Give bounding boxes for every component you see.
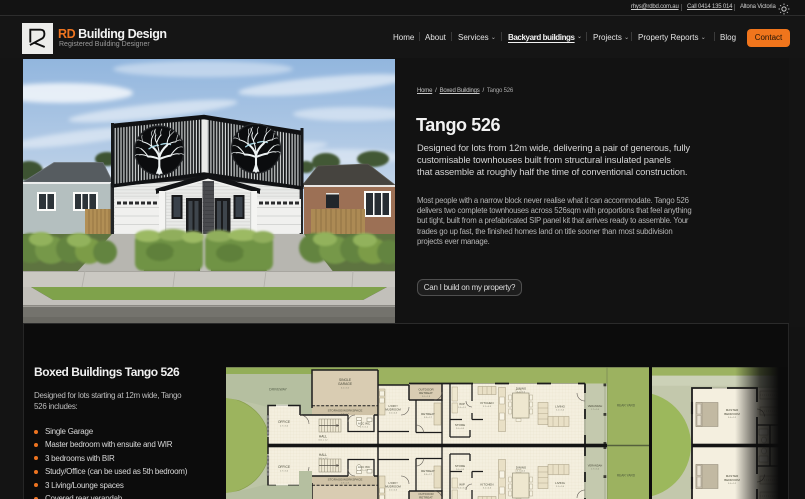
svg-text:5.1 x 5.4: 5.1 x 5.4	[556, 486, 565, 488]
svg-text:2.7 x 1.2: 2.7 x 1.2	[360, 470, 369, 472]
svg-text:HALL: HALL	[319, 453, 327, 457]
svg-text:3.2 x 4.0: 3.2 x 4.0	[517, 471, 526, 473]
svg-text:1.7 x 5.4: 1.7 x 5.4	[591, 469, 600, 471]
svg-text:DINING: DINING	[516, 387, 527, 391]
svg-text:3.1 x 4.3: 3.1 x 4.3	[483, 488, 492, 490]
svg-text:1.6 x 3.1: 1.6 x 3.1	[458, 407, 467, 409]
svg-text:ACC WC: ACC WC	[358, 422, 371, 426]
svg-text:1.7 x 5.4: 1.7 x 5.4	[591, 409, 600, 411]
svg-text:WIP: WIP	[459, 402, 465, 406]
svg-text:2.5 x 4.3: 2.5 x 4.3	[389, 413, 398, 415]
svg-text:3.0 x 1.8: 3.0 x 1.8	[422, 396, 431, 398]
svg-text:RETREAT: RETREAT	[419, 496, 433, 499]
svg-text:ACC WC: ACC WC	[358, 465, 371, 469]
svg-text:KITCHEN: KITCHEN	[480, 483, 493, 487]
svg-text:2.7 x 3.4: 2.7 x 3.4	[280, 426, 289, 428]
svg-text:10.1 x 1.2: 10.1 x 1.2	[318, 440, 328, 442]
svg-text:5.1 x 5.4: 5.1 x 5.4	[556, 410, 565, 412]
svg-text:REAR YARD: REAR YARD	[617, 474, 636, 478]
svg-text:GARAGE: GARAGE	[338, 382, 353, 386]
svg-text:OFFICE: OFFICE	[278, 465, 291, 469]
svg-text:5.8 x 0.9: 5.8 x 0.9	[341, 482, 350, 484]
svg-text:KITCHEN: KITCHEN	[480, 401, 493, 405]
svg-text:MUDROOM: MUDROOM	[385, 408, 401, 412]
svg-text:5.8 x 0.9: 5.8 x 0.9	[341, 413, 350, 415]
svg-text:LIVING: LIVING	[555, 405, 566, 409]
svg-text:STORAGE/WORKSPACE: STORAGE/WORKSPACE	[328, 409, 363, 413]
svg-text:STORAGE/WORKSPACE: STORAGE/WORKSPACE	[328, 478, 363, 482]
svg-text:HALL: HALL	[319, 435, 327, 439]
svg-text:3.8 x 2.7: 3.8 x 2.7	[424, 417, 433, 419]
svg-text:2.7 x 3.4: 2.7 x 3.4	[280, 471, 289, 473]
svg-text:10.1 x 1.2: 10.1 x 1.2	[318, 458, 328, 460]
svg-text:1.6 x 3.1: 1.6 x 3.1	[458, 488, 467, 490]
svg-text:LIVING: LIVING	[555, 481, 566, 485]
svg-text:VERANDAH: VERANDAH	[588, 464, 603, 468]
svg-text:6.1 x 3.5: 6.1 x 3.5	[341, 388, 350, 390]
svg-text:2.7 x 1.2: 2.7 x 1.2	[360, 427, 369, 429]
svg-text:MUDROOM: MUDROOM	[385, 485, 401, 489]
svg-text:VERANDAH: VERANDAH	[588, 404, 603, 408]
svg-text:REAR YARD: REAR YARD	[617, 404, 636, 408]
svg-text:STORE: STORE	[455, 464, 465, 468]
svg-text:STORE: STORE	[455, 423, 465, 427]
svg-text:RETREAT: RETREAT	[419, 391, 433, 395]
svg-text:OFFICE: OFFICE	[278, 420, 291, 424]
svg-text:WIP: WIP	[459, 483, 465, 487]
svg-text:2.0 x 0.9: 2.0 x 0.9	[456, 428, 465, 430]
svg-text:3.1 x 4.3: 3.1 x 4.3	[483, 406, 492, 408]
svg-text:3.2 x 4.0: 3.2 x 4.0	[517, 392, 526, 394]
svg-text:RETREAT: RETREAT	[421, 469, 435, 473]
svg-text:2.5 x 4.3: 2.5 x 4.3	[389, 490, 398, 492]
svg-text:RETREAT: RETREAT	[421, 412, 435, 416]
svg-text:DINING: DINING	[516, 466, 527, 470]
svg-text:DRIVEWAY: DRIVEWAY	[269, 388, 287, 392]
svg-text:3.8 x 2.7: 3.8 x 2.7	[424, 474, 433, 476]
svg-text:2.0 x 0.9: 2.0 x 0.9	[456, 469, 465, 471]
